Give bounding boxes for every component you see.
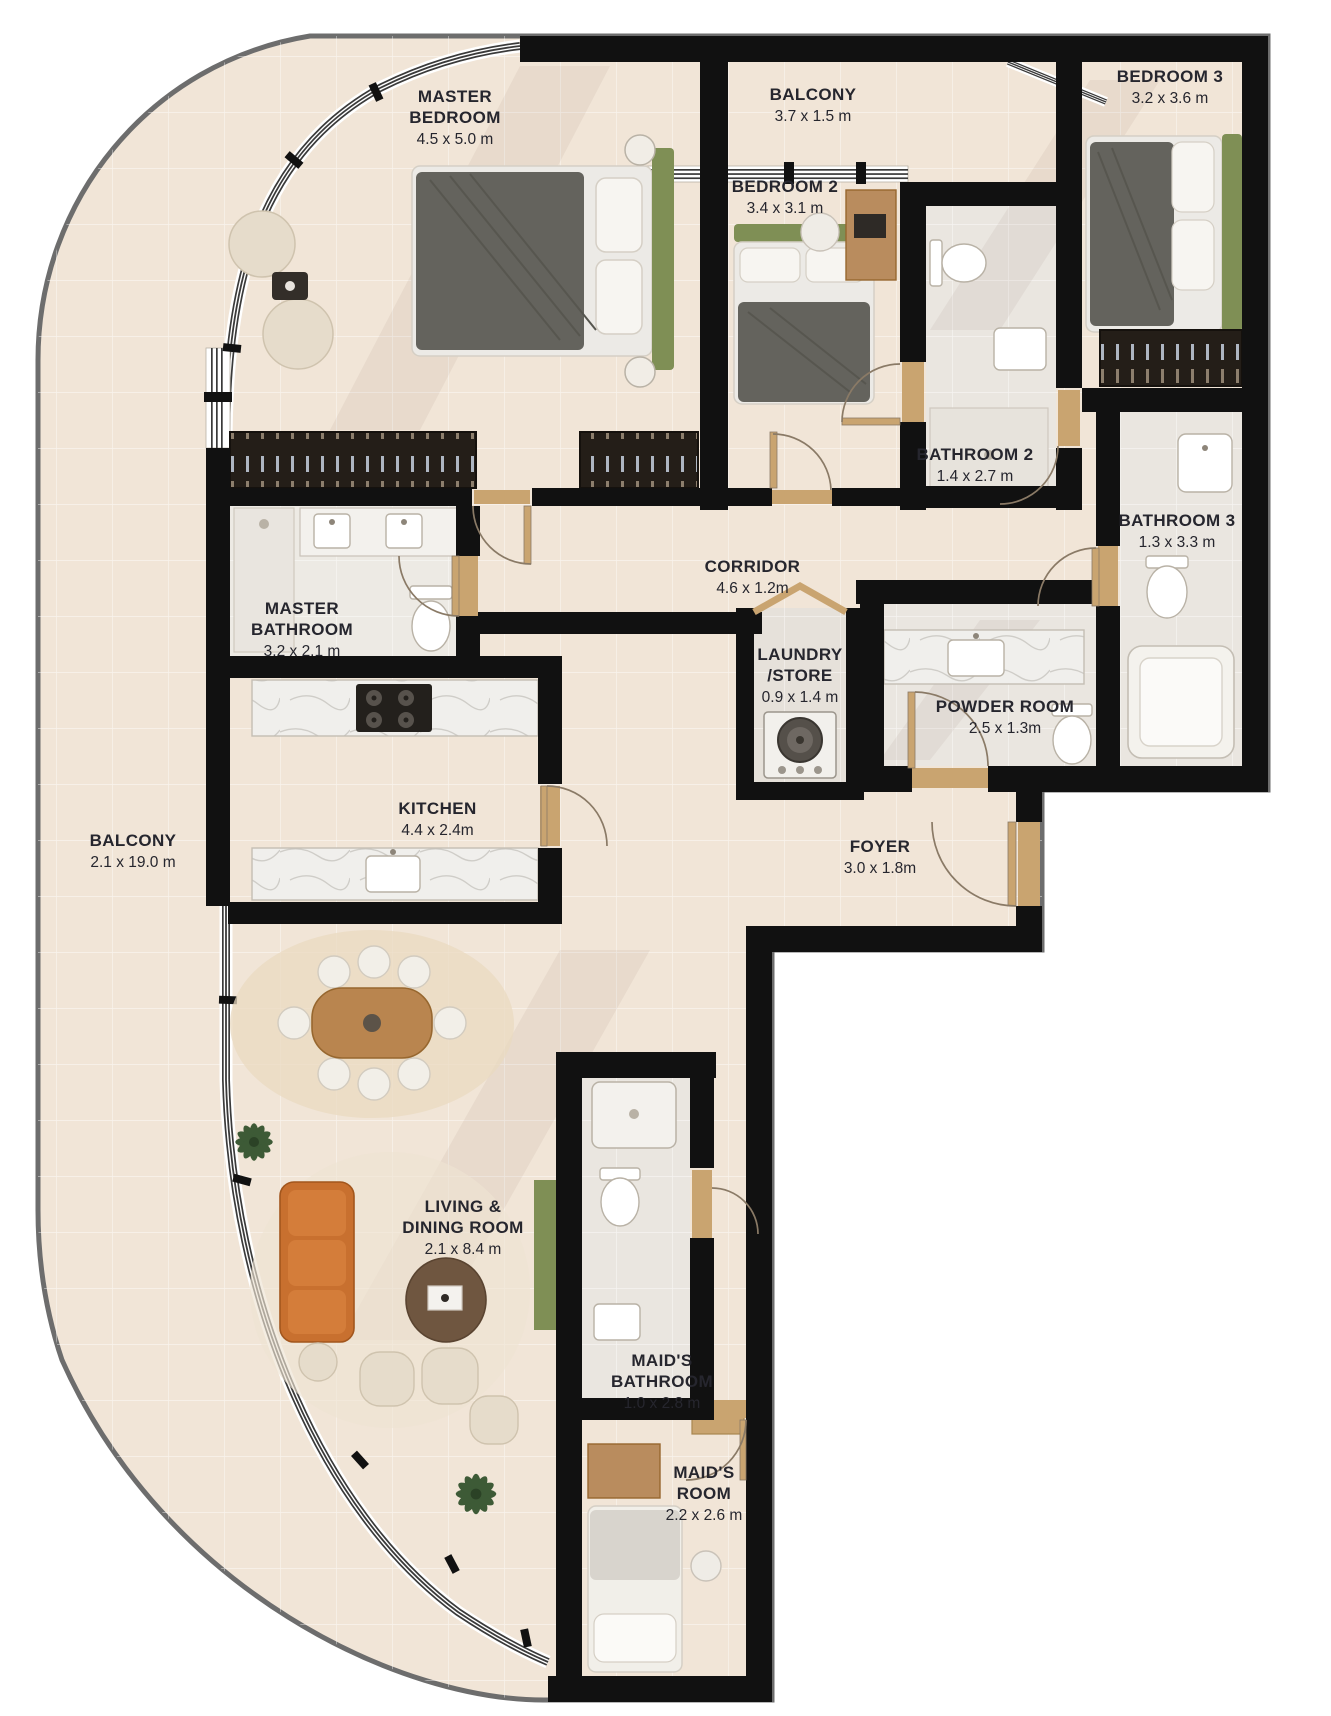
room-name: KITCHEN	[350, 798, 525, 819]
room-name: BEDROOM 3	[1090, 66, 1250, 87]
room-label-bathroom-2: BATHROOM 2 1.4 x 2.7 m	[890, 444, 1060, 486]
room-dims: 1.4 x 2.7 m	[890, 467, 1060, 486]
room-name: LAUNDRY /STORE	[754, 644, 846, 686]
room-label-master-bathroom: MASTER BATHROOM 3.2 x 2.1 m	[232, 598, 372, 661]
room-label-foyer: FOYER 3.0 x 1.8m	[795, 836, 965, 878]
maid-bed-icon	[588, 1506, 682, 1672]
armchair-icon	[470, 1396, 518, 1444]
armchair-icon	[360, 1352, 414, 1406]
toilet-icon	[410, 586, 452, 651]
sink-icon	[594, 1304, 640, 1340]
room-dims: 3.4 x 3.1 m	[700, 199, 870, 218]
room-dims: 1.3 x 3.3 m	[1112, 533, 1242, 552]
room-label-balcony-left: BALCONY 2.1 x 19.0 m	[58, 830, 208, 872]
room-dims: 3.0 x 1.8m	[795, 859, 965, 878]
master-bed-icon	[412, 135, 674, 387]
room-dims: 2.5 x 1.3m	[900, 719, 1110, 738]
room-label-bedroom-2: BEDROOM 2 3.4 x 3.1 m	[700, 176, 870, 218]
room-name: CORRIDOR	[665, 556, 840, 577]
room-dims: 1.0 x 2.8 m	[597, 1394, 727, 1413]
room-name: BATHROOM 2	[890, 444, 1060, 465]
room-label-powder-room: POWDER ROOM 2.5 x 1.3m	[900, 696, 1110, 738]
room-name: MAID'S BATHROOM	[597, 1350, 727, 1392]
kitchen-counter-icon	[252, 680, 538, 736]
desk-icon	[588, 1444, 660, 1498]
room-dims: 2.1 x 19.0 m	[58, 853, 208, 872]
room-label-kitchen: KITCHEN 4.4 x 2.4m	[350, 798, 525, 840]
bedroom3-bed-icon	[1086, 134, 1242, 332]
room-dims: 0.9 x 1.4 m	[754, 688, 846, 707]
room-dims: 3.2 x 2.1 m	[232, 642, 372, 661]
bathtub-icon	[1128, 646, 1234, 758]
room-label-living-dining: LIVING & DINING ROOM 2.1 x 8.4 m	[399, 1196, 527, 1259]
pouf-icon	[299, 1343, 337, 1381]
room-label-master-bedroom: MASTER BEDROOM 4.5 x 5.0 m	[385, 86, 525, 149]
room-label-maids-room: MAID'S ROOM 2.2 x 2.6 m	[659, 1462, 749, 1525]
floor-plan-canvas: MASTER BEDROOM 4.5 x 5.0 m BALCONY 3.7 x…	[0, 0, 1331, 1716]
washing-machine-icon	[764, 712, 836, 778]
room-name: LIVING & DINING ROOM	[399, 1196, 527, 1238]
sink-icon	[994, 328, 1046, 370]
sink-icon	[366, 856, 420, 892]
room-name: MAID'S ROOM	[659, 1462, 749, 1504]
room-dims: 3.2 x 3.6 m	[1090, 89, 1250, 108]
toilet-icon	[1146, 556, 1188, 618]
room-label-corridor: CORRIDOR 4.6 x 1.2m	[665, 556, 840, 598]
room-dims: 3.7 x 1.5 m	[728, 107, 898, 126]
sink-icon	[1178, 434, 1232, 492]
stove-icon	[356, 684, 432, 732]
sink-icon	[948, 640, 1004, 676]
room-name: BATHROOM 3	[1112, 510, 1242, 531]
kitchen-island-icon	[252, 848, 538, 900]
room-name: BALCONY	[58, 830, 208, 851]
room-name: MASTER BEDROOM	[385, 86, 525, 128]
armchair-icon	[422, 1348, 478, 1404]
room-label-bedroom-3: BEDROOM 3 3.2 x 3.6 m	[1090, 66, 1250, 108]
room-name: POWDER ROOM	[900, 696, 1110, 717]
dining-set-icon	[230, 930, 514, 1118]
room-dims: 4.5 x 5.0 m	[385, 130, 525, 149]
maid-wardrobe-strip	[534, 1180, 556, 1330]
room-name: BEDROOM 2	[700, 176, 870, 197]
room-dims: 4.6 x 1.2m	[665, 579, 840, 598]
room-label-bathroom-3: BATHROOM 3 1.3 x 3.3 m	[1112, 510, 1242, 552]
room-dims: 4.4 x 2.4m	[350, 821, 525, 840]
stool-icon	[691, 1551, 721, 1581]
room-dims: 2.1 x 8.4 m	[399, 1240, 527, 1259]
room-name: MASTER BATHROOM	[232, 598, 372, 640]
toilet-icon	[600, 1168, 640, 1226]
room-name: FOYER	[795, 836, 965, 857]
room-name: BALCONY	[728, 84, 898, 105]
room-dims: 2.2 x 2.6 m	[659, 1506, 749, 1525]
coffee-table-icon	[406, 1258, 486, 1342]
room-label-laundry-store: LAUNDRY /STORE 0.9 x 1.4 m	[754, 644, 846, 707]
room-label-maids-bathroom: MAID'S BATHROOM 1.0 x 2.8 m	[597, 1350, 727, 1413]
room-label-balcony-top: BALCONY 3.7 x 1.5 m	[728, 84, 898, 126]
sofa-icon	[280, 1182, 354, 1342]
